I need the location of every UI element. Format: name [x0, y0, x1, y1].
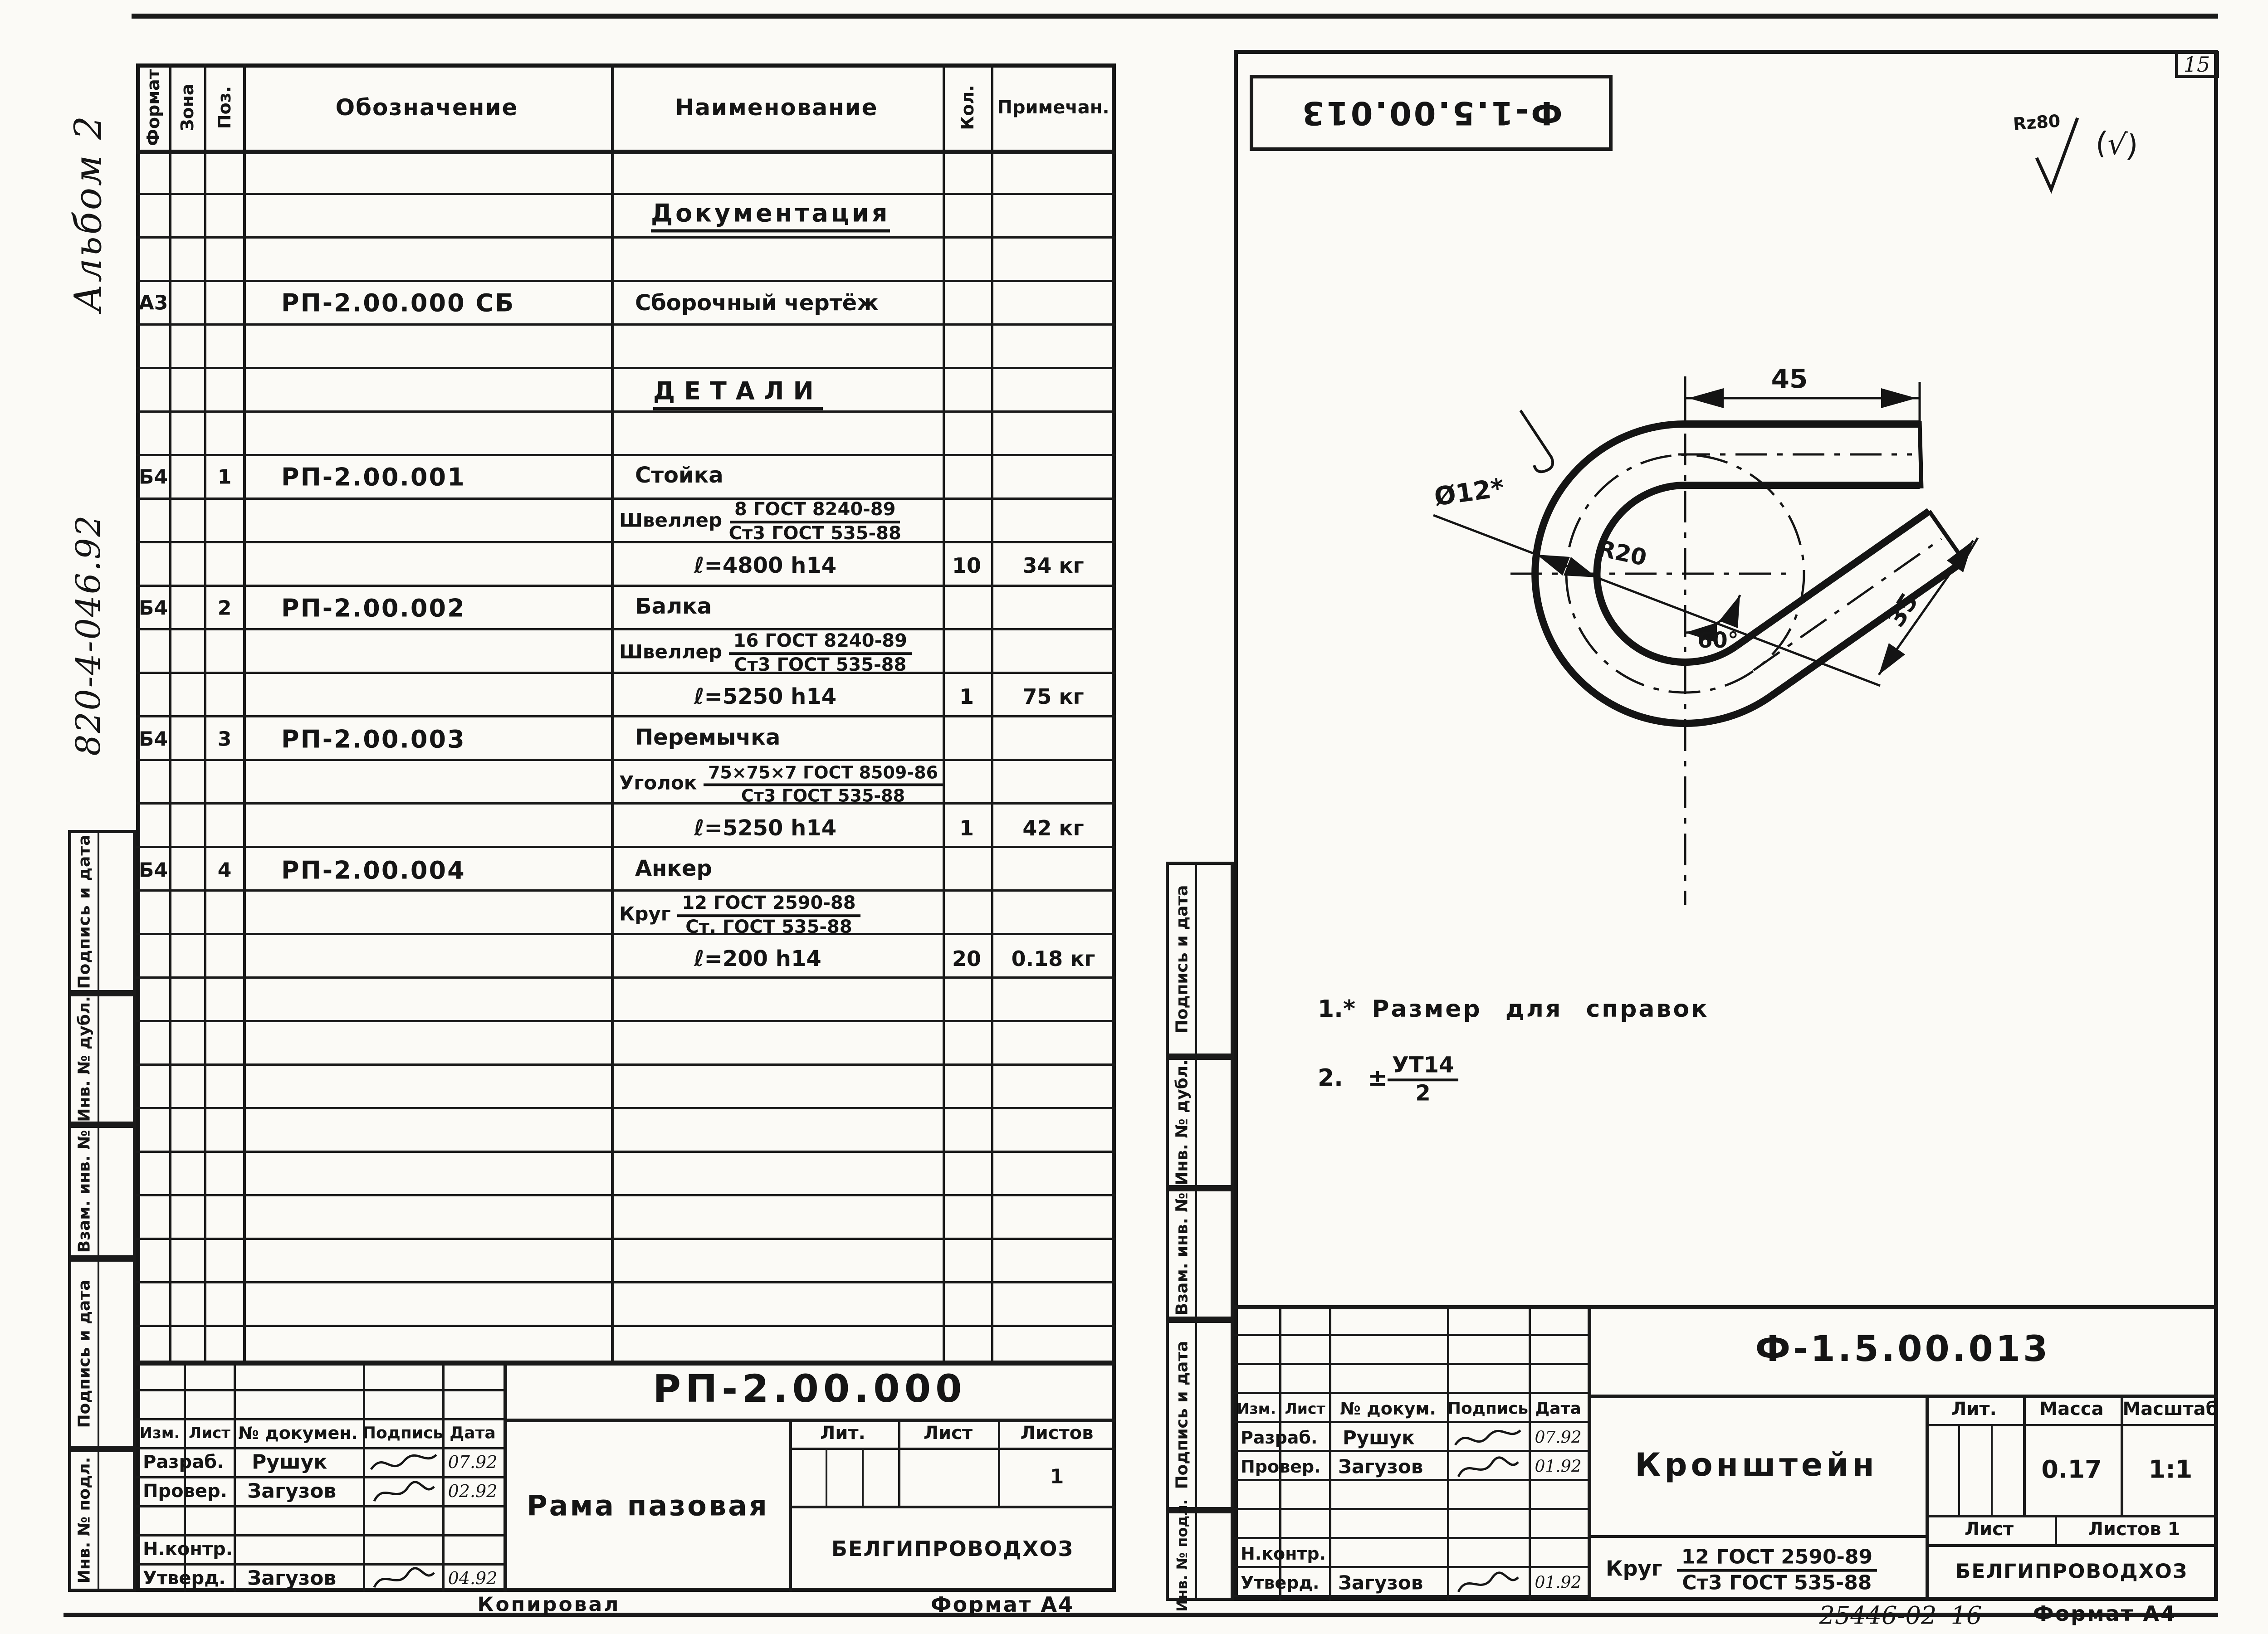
divider — [503, 1361, 507, 1592]
copied-label: Копировал — [478, 1593, 621, 1616]
divider — [1195, 862, 1197, 1601]
cell-name: Анкер — [635, 856, 712, 881]
hdr-izm: Изм. — [1237, 1400, 1276, 1418]
sheet-title: Рама пазовая — [527, 1489, 769, 1522]
divider — [862, 1448, 864, 1506]
divider — [789, 1448, 1116, 1450]
note-1: 1.* Размер для справок — [1318, 995, 1709, 1023]
sheet-no: 16 — [1951, 1601, 1982, 1630]
material: Круг 12 ГОСТ 2590-89Ст3 ГОСТ 535-88 — [1606, 1546, 1877, 1595]
date-utverd: 01.92 — [1535, 1574, 1581, 1592]
hdr-list: Лист — [189, 1424, 230, 1442]
list-label: Лист — [1965, 1519, 2014, 1540]
row-prover: Провер. — [1241, 1457, 1321, 1477]
listov-value: 1 — [1050, 1465, 1064, 1488]
cell-material: Круг 12 ГОСТ 2590-88Ст. ГОСТ 535-88 — [619, 893, 860, 937]
col-header-designation: Обозначение — [336, 94, 518, 121]
hdr-izm: Изм. — [140, 1424, 180, 1442]
divider — [1926, 1515, 2218, 1517]
cell-material: Швеллер 16 ГОСТ 8240-89Ст3 ГОСТ 535-88 — [619, 631, 912, 675]
name-razrab: Рушук — [252, 1451, 327, 1474]
listov-label: Листов 1 — [2088, 1519, 2180, 1540]
margin-label: Взам. инв. № — [75, 1130, 94, 1253]
cell-qty: 20 — [952, 946, 981, 971]
cell-note: 42 кг — [1022, 816, 1084, 840]
divider — [1588, 1395, 2218, 1398]
margin-label: Подпись и дата — [75, 834, 94, 989]
col-header-format: Формат — [143, 69, 163, 146]
row-razrab: Разраб. — [143, 1452, 224, 1473]
dim-angle: 60° — [1697, 628, 1739, 653]
col-header-qty: Кол. — [958, 85, 978, 130]
format-label: Формат А4 — [2033, 1601, 2176, 1626]
margin-label: Подпись и дата — [1173, 885, 1192, 1034]
cell-format: А3 — [139, 292, 168, 315]
divider — [898, 1419, 900, 1506]
bracket-drawing: 45 Ø12* R20 60° 35 — [1406, 354, 2050, 943]
lit-label: Лит. — [820, 1423, 865, 1444]
cell-note: 34 кг — [1022, 553, 1084, 578]
section-heading: ДЕТАЛИ — [653, 377, 823, 405]
signature — [1452, 1425, 1524, 1452]
divider — [98, 830, 99, 1592]
roughness-alt: (√) — [2094, 125, 2140, 164]
signature — [370, 1479, 438, 1507]
date-razrab: 07.92 — [1535, 1429, 1581, 1447]
hdr-date: Дата — [450, 1424, 496, 1443]
divider — [1991, 1424, 1993, 1515]
cell-note: 0.18 кг — [1012, 946, 1095, 971]
date-razrab: 07.92 — [448, 1452, 498, 1472]
margin-label: Инв. № дубл. — [1173, 1059, 1192, 1185]
signature — [1454, 1570, 1522, 1597]
row-utverd: Утверд. — [143, 1568, 226, 1589]
margin-label: Инв. № подл. — [1173, 1499, 1191, 1612]
col-header-pos: Поз. — [215, 86, 235, 129]
dim-diameter: Ø12* — [1432, 473, 1506, 512]
divider — [442, 1361, 445, 1592]
page-number: 15 — [2184, 52, 2210, 77]
row-prover: Провер. — [143, 1481, 227, 1502]
side-code: 820-4-046.92 — [69, 514, 108, 756]
cell-format: Б4 — [139, 466, 168, 489]
divider — [1529, 1307, 1531, 1601]
divider — [363, 1361, 365, 1592]
margin-label: Инв. № подл. — [75, 1457, 94, 1584]
org-name: БЕЛГИПРОВОДХОЗ — [831, 1536, 1074, 1561]
divider — [2023, 1395, 2026, 1515]
album-note: Альбом 2 — [67, 114, 110, 312]
cell-material: Уголок 75×75×7 ГОСТ 8509-86Ст3 ГОСТ 535-… — [619, 763, 943, 805]
cell-name: Балка — [635, 594, 712, 619]
cell-name: Перемычка — [635, 725, 780, 750]
cell-designation: РП-2.00.000 СБ — [281, 289, 515, 317]
cell-pos: 2 — [218, 597, 232, 620]
cell-name: Стойка — [635, 463, 723, 488]
divider — [1958, 1424, 1960, 1515]
cell-format: Б4 — [139, 728, 168, 751]
signature — [1454, 1455, 1522, 1482]
signature — [370, 1566, 438, 1593]
doc-number: РП-2.00.000 — [653, 1366, 966, 1411]
divider — [2055, 1515, 2057, 1544]
row-razrab: Разраб. — [1241, 1428, 1317, 1448]
note-2: 2. ±УТ142 — [1318, 1053, 1458, 1106]
margin-label: Инв. № дубл. — [75, 996, 94, 1122]
divider — [503, 1419, 1116, 1422]
scanned-drawing-page: Альбом 2 820-4-046.92 Подпись и дата Инв… — [0, 0, 2268, 1634]
org-name: БЕЛГИПРОВОДХОЗ — [1955, 1560, 2188, 1583]
format-label: Формат А4 — [931, 1592, 1074, 1617]
cell-name: Сборочный чертёж — [635, 290, 879, 316]
divider — [132, 14, 2218, 19]
cell-pos: 3 — [218, 728, 232, 751]
cell-qty: 1 — [959, 684, 974, 709]
dim-radius: R20 — [1596, 535, 1649, 571]
section-heading: Документация — [651, 199, 890, 228]
part-title: Кронштейн — [1635, 1446, 1878, 1483]
divider — [789, 1506, 1116, 1508]
date-utverd: 04.92 — [448, 1568, 498, 1588]
divider — [998, 1419, 1000, 1506]
name-prover: Загузов — [247, 1480, 336, 1503]
cell-size: ℓ=5250 h14 — [694, 815, 836, 841]
date-prover: 01.92 — [1535, 1458, 1581, 1476]
divider — [826, 1448, 827, 1506]
cell-designation: РП-2.00.003 — [281, 725, 466, 754]
stamp-number: Ф-1.5.00.013 — [1300, 94, 1562, 132]
divider — [1447, 1307, 1449, 1601]
list-label: Лист — [924, 1423, 973, 1444]
hdr-doc: № докум. — [1340, 1399, 1436, 1419]
hdr-date: Дата — [1535, 1400, 1581, 1418]
name-utverd: Загузов — [1338, 1572, 1423, 1594]
cell-pos: 1 — [218, 466, 232, 489]
margin-label: Взам. инв. № — [1173, 1193, 1192, 1316]
cell-size: ℓ=5250 h14 — [694, 684, 836, 709]
name-utverd: Загузов — [247, 1567, 336, 1590]
row-nkontr: Н.контр. — [1241, 1544, 1326, 1564]
divider — [1329, 1307, 1331, 1601]
hdr-sign: Подпись — [1447, 1400, 1528, 1418]
hdr-list: Лист — [1285, 1400, 1325, 1418]
cell-pos: 4 — [218, 859, 232, 882]
cell-size: ℓ=4800 h14 — [694, 553, 836, 578]
hdr-doc: № докумен. — [238, 1423, 358, 1443]
dim-width: 45 — [1771, 363, 1808, 394]
date-prover: 02.92 — [448, 1481, 498, 1501]
hdr-sign: Подпись — [362, 1424, 443, 1443]
divider — [1588, 1535, 1926, 1538]
massa-value: 0.17 — [2041, 1455, 2102, 1484]
table-row-rules — [136, 151, 1116, 1361]
roughness-check-icon — [2023, 113, 2096, 200]
cell-qty: 10 — [952, 553, 981, 578]
cell-material: Швеллер 8 ГОСТ 8240-89Ст3 ГОСТ 535-88 — [619, 499, 901, 544]
listov-label: Листов — [1021, 1423, 1094, 1444]
cell-qty: 1 — [959, 816, 974, 840]
scale-value: 1:1 — [2149, 1455, 2193, 1484]
doc-number: Ф-1.5.00.013 — [1755, 1329, 2051, 1370]
col-header-note: Примечан. — [997, 97, 1109, 118]
divider — [789, 1419, 792, 1592]
masshtab-label: Масштаб — [2122, 1399, 2218, 1419]
col-header-zone: Зона — [177, 83, 197, 131]
margin-label: Подпись и дата — [1173, 1341, 1192, 1489]
margin-label: Подпись и дата — [75, 1280, 94, 1428]
cell-designation: РП-2.00.001 — [281, 463, 466, 492]
cell-size: ℓ=200 h14 — [694, 946, 821, 971]
lit-label: Лит. — [1951, 1399, 1997, 1419]
divider — [234, 1361, 236, 1592]
name-prover: Загузов — [1338, 1456, 1423, 1478]
row-nkontr: Н.контр. — [143, 1539, 233, 1560]
cell-format: Б4 — [139, 859, 168, 882]
divider — [1926, 1424, 2218, 1426]
cell-designation: РП-2.00.004 — [281, 856, 466, 885]
cell-format: Б4 — [139, 597, 168, 620]
massa-label: Масса — [2039, 1399, 2103, 1419]
name-razrab: Рушук — [1343, 1427, 1415, 1449]
signature — [367, 1449, 440, 1477]
cell-designation: РП-2.00.002 — [281, 594, 466, 623]
divider — [1926, 1544, 2218, 1547]
row-utverd: Утверд. — [1241, 1573, 1319, 1593]
cell-note: 75 кг — [1022, 684, 1084, 709]
divider — [1588, 1307, 1591, 1601]
col-header-name: Наименование — [675, 94, 878, 121]
order-number: 25446-02 — [1819, 1601, 1937, 1630]
